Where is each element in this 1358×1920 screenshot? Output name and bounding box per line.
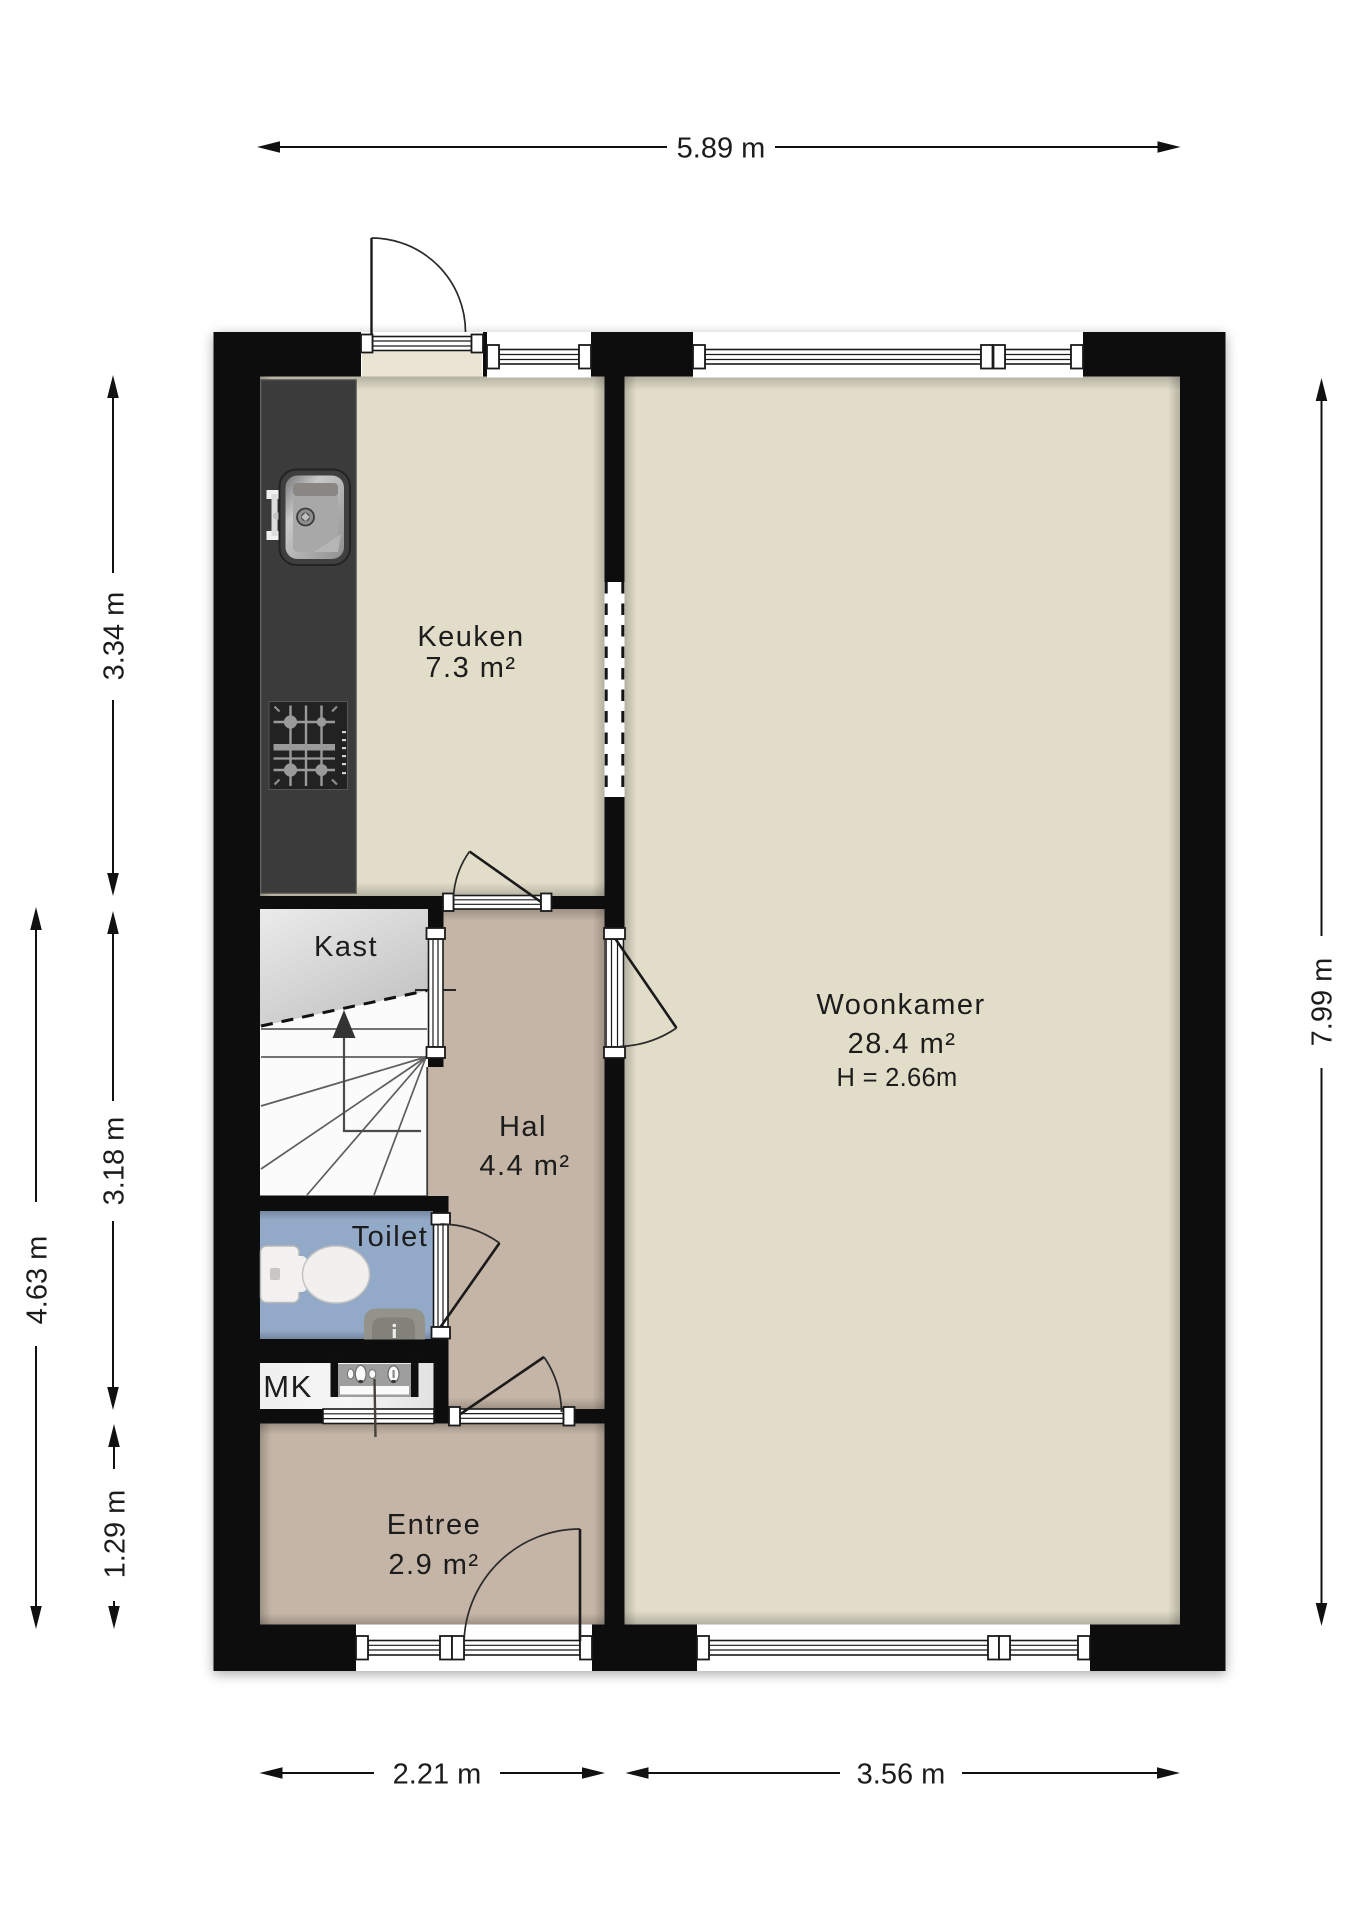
svg-text:7.99 m: 7.99 m xyxy=(1307,958,1339,1047)
svg-text:Entree: Entree xyxy=(387,1509,481,1541)
svg-text:Kast: Kast xyxy=(314,931,378,963)
svg-text:3.18 m: 3.18 m xyxy=(99,1117,131,1206)
svg-text:3.34 m: 3.34 m xyxy=(99,592,131,681)
svg-text:1.29 m: 1.29 m xyxy=(100,1490,132,1579)
svg-text:Toilet: Toilet xyxy=(352,1221,429,1253)
svg-text:Keuken: Keuken xyxy=(417,621,524,653)
svg-text:2.21 m: 2.21 m xyxy=(393,1759,482,1791)
svg-text:Woonkamer: Woonkamer xyxy=(816,989,985,1021)
svg-text:Hal: Hal xyxy=(499,1111,547,1143)
svg-text:MK: MK xyxy=(263,1369,313,1404)
svg-text:7.3 m²: 7.3 m² xyxy=(425,652,516,684)
svg-text:28.4 m²: 28.4 m² xyxy=(848,1028,957,1060)
svg-text:4.63 m: 4.63 m xyxy=(22,1236,54,1325)
svg-text:H = 2.66m: H = 2.66m xyxy=(836,1064,957,1092)
svg-text:4.4 m²: 4.4 m² xyxy=(479,1150,570,1182)
svg-text:5.89 m: 5.89 m xyxy=(677,133,766,165)
svg-text:2.9 m²: 2.9 m² xyxy=(388,1549,479,1581)
svg-text:3.56 m: 3.56 m xyxy=(857,1759,946,1791)
